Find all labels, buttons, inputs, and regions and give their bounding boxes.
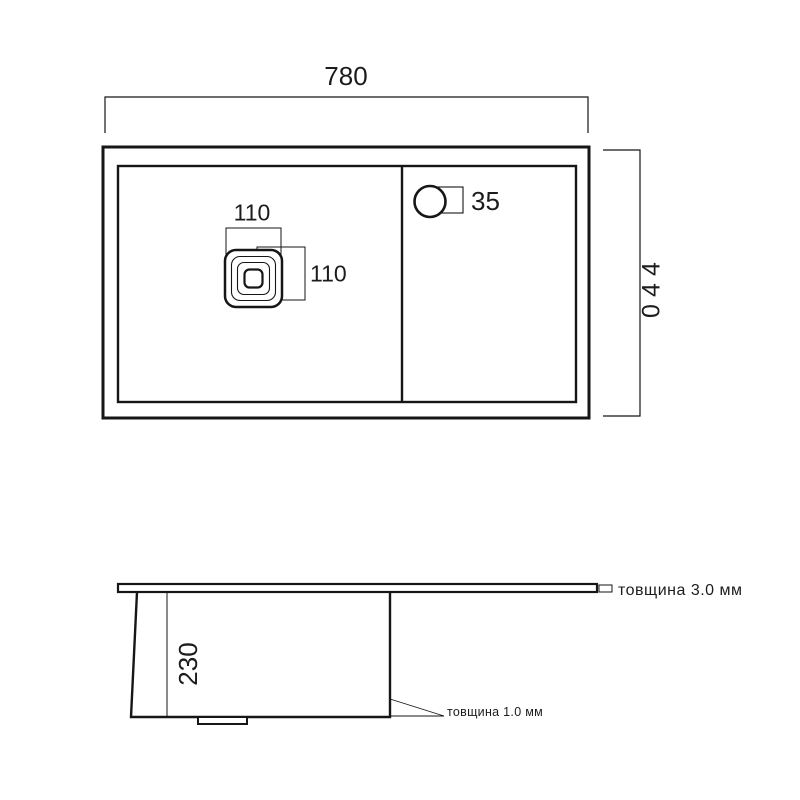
drain-center-hole [245, 270, 263, 288]
dim-height-extension-lines [603, 150, 640, 416]
dim-drain-height-label: 110 [310, 263, 347, 286]
dim-bowl-depth-label: 230 [175, 642, 201, 685]
sink-inner-edge [118, 166, 576, 402]
dim-height-label: 440 [639, 259, 665, 322]
faucet-hole-circle [415, 186, 446, 217]
sink-technical-drawing: 780 110 110 35 440 230 товщина 3.0 мм то… [0, 0, 800, 800]
bowl-profile [131, 592, 390, 717]
rim-profile-bar [118, 584, 597, 592]
wall-thickness-note: товщина 1.0 мм [447, 706, 543, 719]
drain-stub [198, 717, 247, 724]
dim-drain-width-label: 110 [234, 202, 271, 225]
dim-faucet-hole-label: 35 [471, 188, 500, 214]
rim-thickness-ref-box [599, 585, 612, 592]
drawing-linework [0, 0, 800, 800]
rim-thickness-note: товщина 3.0 мм [618, 583, 743, 599]
dim-width-extension-lines [105, 97, 588, 133]
vertical-dim-char: 0 [642, 298, 663, 324]
wall-thickness-leader-lines [390, 699, 444, 716]
dim-width-label: 780 [324, 63, 367, 89]
